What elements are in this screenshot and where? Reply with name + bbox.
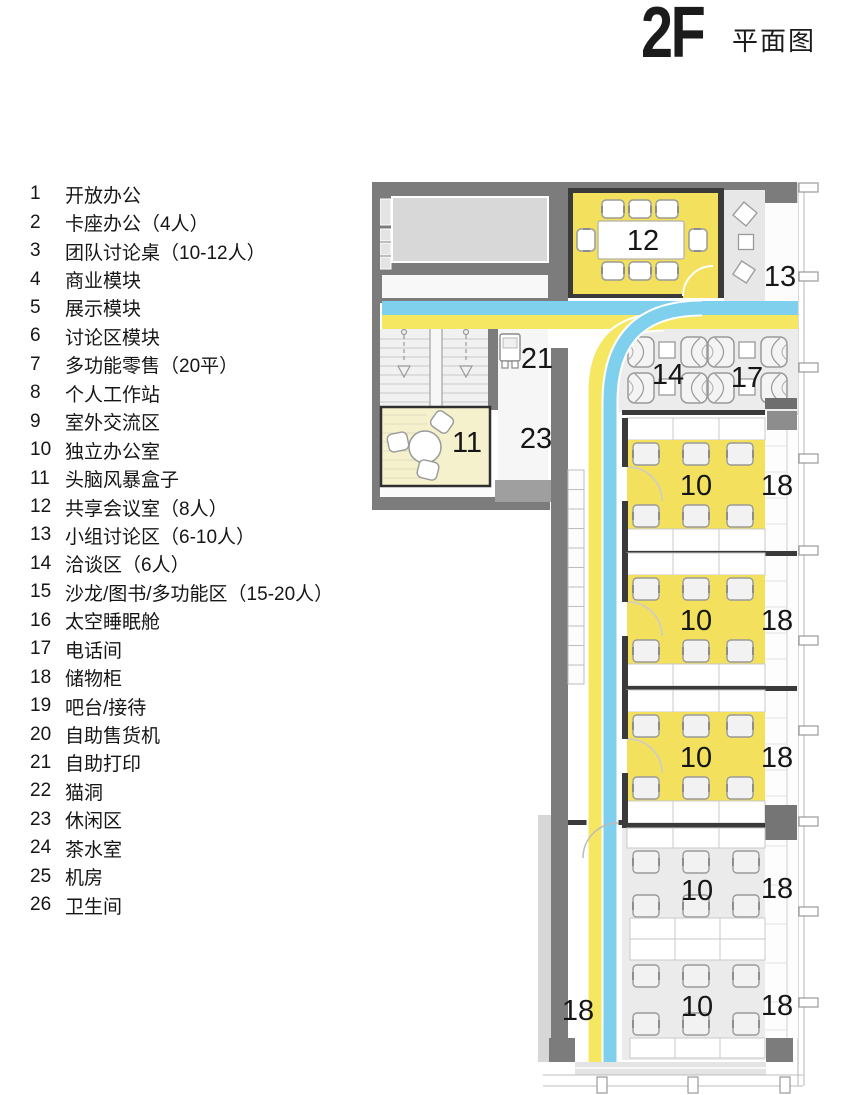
room-17-label: 17 bbox=[731, 362, 763, 394]
room-18-label: 18 bbox=[761, 605, 793, 637]
room-10-label: 10 bbox=[680, 742, 712, 774]
room-13-label: 13 bbox=[764, 261, 796, 293]
wall-left bbox=[372, 182, 380, 510]
locker-strip-right bbox=[765, 415, 798, 1038]
circulation-path-blue bbox=[382, 301, 798, 315]
room-10-label: 10 bbox=[681, 991, 713, 1023]
window-sills-bottom bbox=[597, 1077, 790, 1093]
room-18-label: 18 bbox=[761, 742, 793, 774]
window-sills bbox=[799, 183, 818, 1007]
room-11-label: 11 bbox=[452, 427, 482, 459]
utility-room bbox=[392, 197, 548, 262]
column-block bbox=[766, 1038, 793, 1062]
corridor bbox=[382, 275, 548, 298]
circulation-path-yellow bbox=[382, 315, 798, 329]
floor-plan: 12 13 21 14 17 11 23 10 10 10 10 10 18 1… bbox=[0, 0, 843, 1095]
spine-wall bbox=[551, 348, 568, 1038]
exterior-wall-right bbox=[798, 183, 818, 1086]
room-23-label: 23 bbox=[520, 423, 552, 455]
lounge-14-17 bbox=[618, 329, 798, 430]
room-10-label: 10 bbox=[680, 470, 712, 502]
stair-wall bbox=[488, 324, 498, 410]
room-18-label: 18 bbox=[761, 873, 793, 905]
room-10-label: 10 bbox=[681, 875, 713, 907]
room-21-label: 21 bbox=[521, 343, 553, 375]
shelf-column bbox=[568, 470, 584, 684]
room-18-label: 18 bbox=[761, 470, 793, 502]
room-10-label: 10 bbox=[680, 605, 712, 637]
room-18-label: 18 bbox=[562, 995, 594, 1027]
column-block bbox=[549, 1038, 575, 1062]
room-14-label: 14 bbox=[652, 359, 684, 391]
room-12-label: 12 bbox=[627, 225, 659, 257]
exterior-wall-left bbox=[538, 815, 551, 1062]
round-table bbox=[409, 431, 441, 463]
wall-block-top-right bbox=[765, 183, 797, 203]
room-18-label: 18 bbox=[761, 990, 793, 1022]
open-office-bottom bbox=[622, 828, 765, 1060]
